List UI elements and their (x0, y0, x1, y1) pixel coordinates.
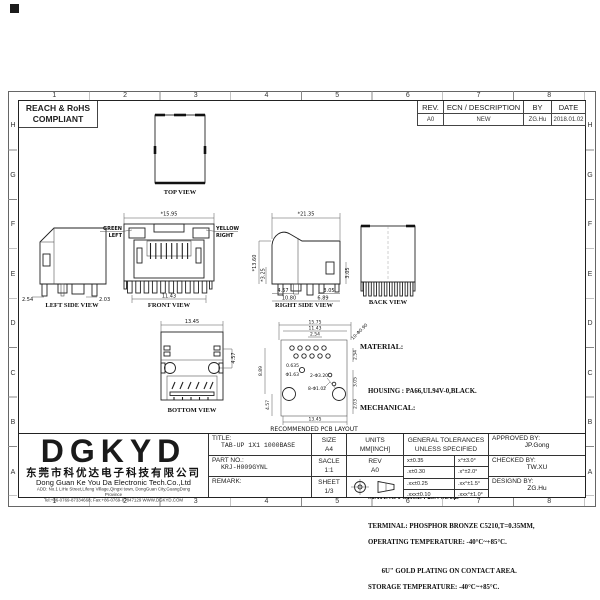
approved-by-label: APPROVED BY: (489, 434, 585, 442)
designed-by-label: DESIGND BY: (489, 477, 585, 485)
grid-row-label: C (585, 349, 595, 399)
green-led-callout: GREEN (103, 226, 122, 232)
yellow-led-callout: RIGHT (216, 233, 234, 239)
grid-col-label: 8 (514, 90, 585, 100)
dim-label: 13.45 (309, 417, 322, 423)
right-side-view-label: RIGHT SIDE VIEW (275, 302, 333, 308)
approvals-cell: APPROVED BY: JP.Gong CHECKED BY: TW.XU D… (488, 434, 585, 497)
tolerance-linear: .xxx±0.10 (404, 490, 454, 500)
dim-label: 11.43 (162, 294, 176, 300)
rev-value: A0 (371, 466, 379, 475)
dim-label: *21.35 (298, 212, 315, 218)
front-view-label: FRONT VIEW (148, 302, 191, 308)
grid-row-label: D (8, 299, 18, 349)
top-view-drawing: TOP VIEW (144, 110, 216, 198)
grid-row-label: B (8, 398, 18, 448)
units-rev-cell: UNITS MM[INCH] REV A0 (346, 434, 403, 497)
scale-label: SACLE (318, 457, 339, 466)
front-view-drawing: *15.95 11.43 GREEN LEFT YELLOW RIGHT (92, 207, 244, 308)
dim-label: 2.03 (353, 399, 359, 409)
back-view-label: BACK VIEW (369, 299, 408, 306)
dim-label: 3.05 (353, 377, 359, 387)
rohs-line2: COMPLIANT (33, 114, 84, 125)
tolerance-angular: x°±3.0° (454, 456, 488, 466)
by-value: ZG.Hu (523, 113, 551, 125)
pcb-layout-drawing: 15.75 11.43 2.54 10-Φ0.90 0.635 Φ1.63 2-… (252, 318, 376, 440)
designed-by-value: ZG.Hu (489, 485, 585, 492)
tolerance-linear: .xx±0.25 (404, 479, 454, 489)
part-no-label: PART NO.: (209, 456, 311, 464)
dim-label: 10.80 (282, 296, 296, 302)
sheet-value: 1/3 (324, 487, 333, 496)
tolerance-row: x±0.35 x°±3.0° (404, 455, 488, 466)
tolerance-row: .x±0.30 .x°±2.0° (404, 466, 488, 477)
dim-label: 4.57 (265, 400, 271, 410)
company-contact: Tel:+86-0769-87334668; Fax:+86-0769-8784… (30, 499, 196, 504)
ecn-col-header: ECN / DESCRIPTION (443, 101, 523, 113)
tolerances-cell: GENERAL TOLERANCES UNLESS SPECIFIED x±0.… (403, 434, 488, 497)
dim-label: 8.89 (258, 366, 264, 376)
mechanical-line: STORAGE TEMPERATURE: -40°C~+85°C. (360, 583, 507, 592)
approved-by-value: JP.Gong (489, 442, 585, 449)
rev-col-header: REV. (418, 101, 443, 113)
hole-note: 8-Φ1.02 (308, 386, 326, 392)
tolerance-row: .xxx±0.10 .xxx°±1.0° (404, 489, 488, 500)
pcb-layout-caption1: RECOMMENDED PCB LAYOUT (270, 426, 358, 433)
company-cell: DGKYD 东莞市科优达电子科技有限公司 Dong Guan Ke You Da… (19, 434, 208, 497)
grid-row-label: C (8, 349, 18, 399)
by-col-header: BY (523, 101, 551, 113)
tolerance-row: .xx±0.25 .xx°±1.5° (404, 478, 488, 489)
title-block: DGKYD 东莞市科优达电子科技有限公司 Dong Guan Ke You Da… (19, 433, 585, 497)
remark-label: REMARK: (209, 477, 311, 485)
dim-label: 2.54 (353, 350, 359, 360)
dim-label: 2.54 (22, 297, 33, 303)
bottom-view-drawing: 13.45 4.57 BOTTOM VIEW (140, 316, 246, 414)
green-led (129, 228, 145, 238)
engineering-drawing-sheet: 1 2 3 4 5 6 7 8 1 2 3 4 5 6 7 8 H G F E … (0, 0, 600, 600)
right-side-view-drawing: *21.35 *13.60 *3.25 4.57 10.80 3.05 6.89… (246, 207, 356, 308)
grid-col-label: 6 (373, 90, 444, 100)
tolerance-header2: UNLESS SPECIFIED (415, 445, 477, 454)
dim-label: 11.43 (309, 326, 322, 332)
dim-label: *13.60 (252, 255, 258, 272)
units-label: UNITS (365, 436, 385, 445)
revision-table: REV. ECN / DESCRIPTION BY DATE A0 NEW ZG… (417, 101, 586, 126)
dim-label: 4.57 (231, 352, 237, 363)
tolerance-linear: .x±0.30 (404, 467, 454, 477)
size-scale-sheet-cell: SIZE A4 SACLE 1:1 SHEET 1/3 (311, 434, 346, 497)
grid-row-label: D (585, 299, 595, 349)
dim-label: 6.89 (317, 296, 328, 302)
dim-label: *15.95 (161, 212, 178, 218)
grid-row-label: F (8, 200, 18, 250)
size-label: SIZE (322, 436, 336, 445)
grid-row-label: H (585, 101, 595, 151)
tolerance-header1: GENERAL TOLERANCES (408, 436, 484, 445)
grid-col-label: 2 (90, 90, 161, 100)
tolerance-linear: x±0.35 (404, 456, 454, 466)
grid-row-label: A (8, 448, 18, 498)
units-value: MM[INCH] (360, 445, 390, 454)
part-no-value: KRJ-H009GYNL (209, 464, 311, 471)
dim-label: *3.25 (261, 268, 267, 282)
mechanical-heading: MECHANICAL: (360, 403, 507, 412)
dim-label: 13.45 (185, 319, 199, 325)
title-value: TAB-UP 1X1 1000BASE (209, 442, 311, 449)
dim-label: 4.57 (277, 288, 288, 294)
rev-label: REV (368, 457, 381, 466)
green-led-callout: LEFT (109, 233, 123, 239)
title-part-cell: TITLE: TAB-UP 1X1 1000BASE PART NO.: KRJ… (208, 434, 311, 497)
grid-col-label: 5 (302, 90, 373, 100)
title-label: TITLE: (209, 434, 311, 442)
mechanical-line: OPERATING TEMPERATURE: -40°C~+85°C. (360, 538, 507, 547)
grid-row-label: G (8, 151, 18, 201)
dim-label: 2.54 (310, 332, 320, 338)
grid-row-label: E (585, 250, 595, 300)
dim-label: 3.05 (323, 288, 334, 294)
tolerance-angular: .x°±2.0° (454, 467, 488, 477)
company-address: ADD: No.1 LiHe Street,Lifeng Village,Qin… (30, 488, 196, 498)
dim-label: 0.635 (286, 363, 299, 369)
material-heading: MATERIAL: (360, 342, 560, 351)
grid-col-label: 4 (231, 90, 302, 100)
back-view-drawing: BACK VIEW (350, 218, 426, 308)
size-value: A4 (325, 445, 333, 454)
grid-col-label: 1 (19, 90, 90, 100)
grid-row-label: H (8, 101, 18, 151)
sheet-label: SHEET (318, 478, 340, 487)
dim-label: 15.75 (309, 320, 322, 326)
checked-by-label: CHECKED BY: (489, 456, 585, 464)
corner-mark (10, 4, 19, 13)
grid-row-label: B (585, 398, 595, 448)
date-col-header: DATE (551, 101, 585, 113)
dim-label: Φ1.63 (285, 372, 299, 378)
projection-symbol-icon (348, 478, 402, 496)
date-value: 2018.01.02 (551, 113, 585, 125)
rev-value: A0 (418, 113, 443, 125)
grid-col-label: 4 (231, 496, 302, 506)
checked-by-value: TW.XU (489, 464, 585, 471)
grid-row-label: F (585, 200, 595, 250)
rohs-compliance-box: REACH & RoHS COMPLIANT (19, 101, 98, 128)
tolerance-angular: .xx°±1.5° (454, 479, 488, 489)
bottom-view-label: BOTTOM VIEW (168, 407, 217, 414)
grid-row-label: E (8, 250, 18, 300)
yellow-led (193, 228, 209, 238)
ecn-value: NEW (443, 113, 523, 125)
tolerance-angular: .xxx°±1.0° (454, 490, 488, 500)
rohs-line1: REACH & RoHS (26, 103, 90, 114)
grid-col-label: 3 (160, 90, 231, 100)
grid-row-label: G (585, 151, 595, 201)
top-view-label: TOP VIEW (164, 189, 197, 196)
yellow-led-callout: YELLOW (215, 226, 239, 232)
grid-col-label: 7 (443, 90, 514, 100)
company-logo: DGKYD (19, 435, 208, 467)
grid-row-label: A (585, 448, 595, 498)
scale-value: 1:1 (324, 466, 333, 475)
hole-note: 2-Φ3.20 (310, 373, 328, 379)
